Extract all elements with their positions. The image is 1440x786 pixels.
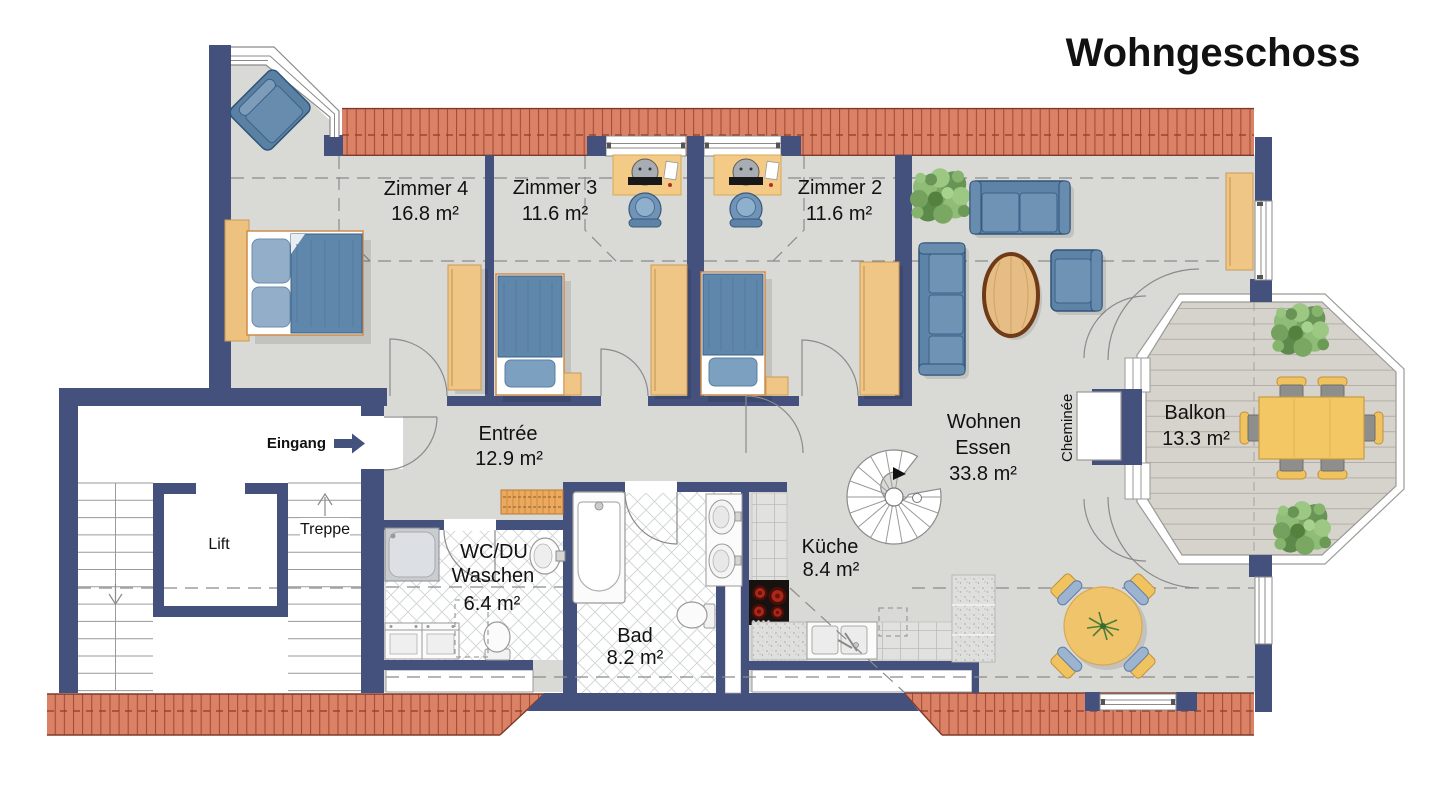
svg-text:16.8 m²: 16.8 m²	[391, 203, 459, 225]
svg-text:Cheminée: Cheminée	[1059, 394, 1076, 462]
svg-text:Wohnen: Wohnen	[947, 411, 1021, 433]
svg-text:Zimmer 3: Zimmer 3	[513, 177, 597, 199]
svg-text:Essen: Essen	[955, 437, 1011, 459]
svg-text:Waschen: Waschen	[452, 565, 535, 587]
svg-text:Zimmer 2: Zimmer 2	[798, 177, 882, 199]
svg-text:Bad: Bad	[617, 625, 653, 647]
svg-text:Küche: Küche	[802, 536, 859, 558]
svg-text:11.6 m²: 11.6 m²	[806, 203, 873, 225]
svg-text:12.9 m²: 12.9 m²	[475, 448, 543, 470]
svg-text:8.4 m²: 8.4 m²	[803, 559, 860, 581]
svg-text:Eingang: Eingang	[267, 435, 326, 452]
svg-text:Entrée: Entrée	[479, 423, 538, 445]
svg-text:Wohngeschoss: Wohngeschoss	[1066, 31, 1361, 75]
svg-text:8.2 m²: 8.2 m²	[607, 647, 664, 669]
svg-text:Zimmer 4: Zimmer 4	[384, 178, 468, 200]
svg-text:Treppe: Treppe	[300, 521, 350, 538]
svg-text:Balkon: Balkon	[1164, 402, 1225, 424]
svg-text:11.6 m²: 11.6 m²	[522, 203, 589, 225]
svg-text:13.3 m²: 13.3 m²	[1162, 428, 1230, 450]
svg-text:Lift: Lift	[208, 536, 230, 553]
svg-text:WC/DU: WC/DU	[460, 541, 528, 563]
svg-text:6.4 m²: 6.4 m²	[464, 593, 521, 615]
svg-text:33.8 m²: 33.8 m²	[949, 463, 1017, 485]
